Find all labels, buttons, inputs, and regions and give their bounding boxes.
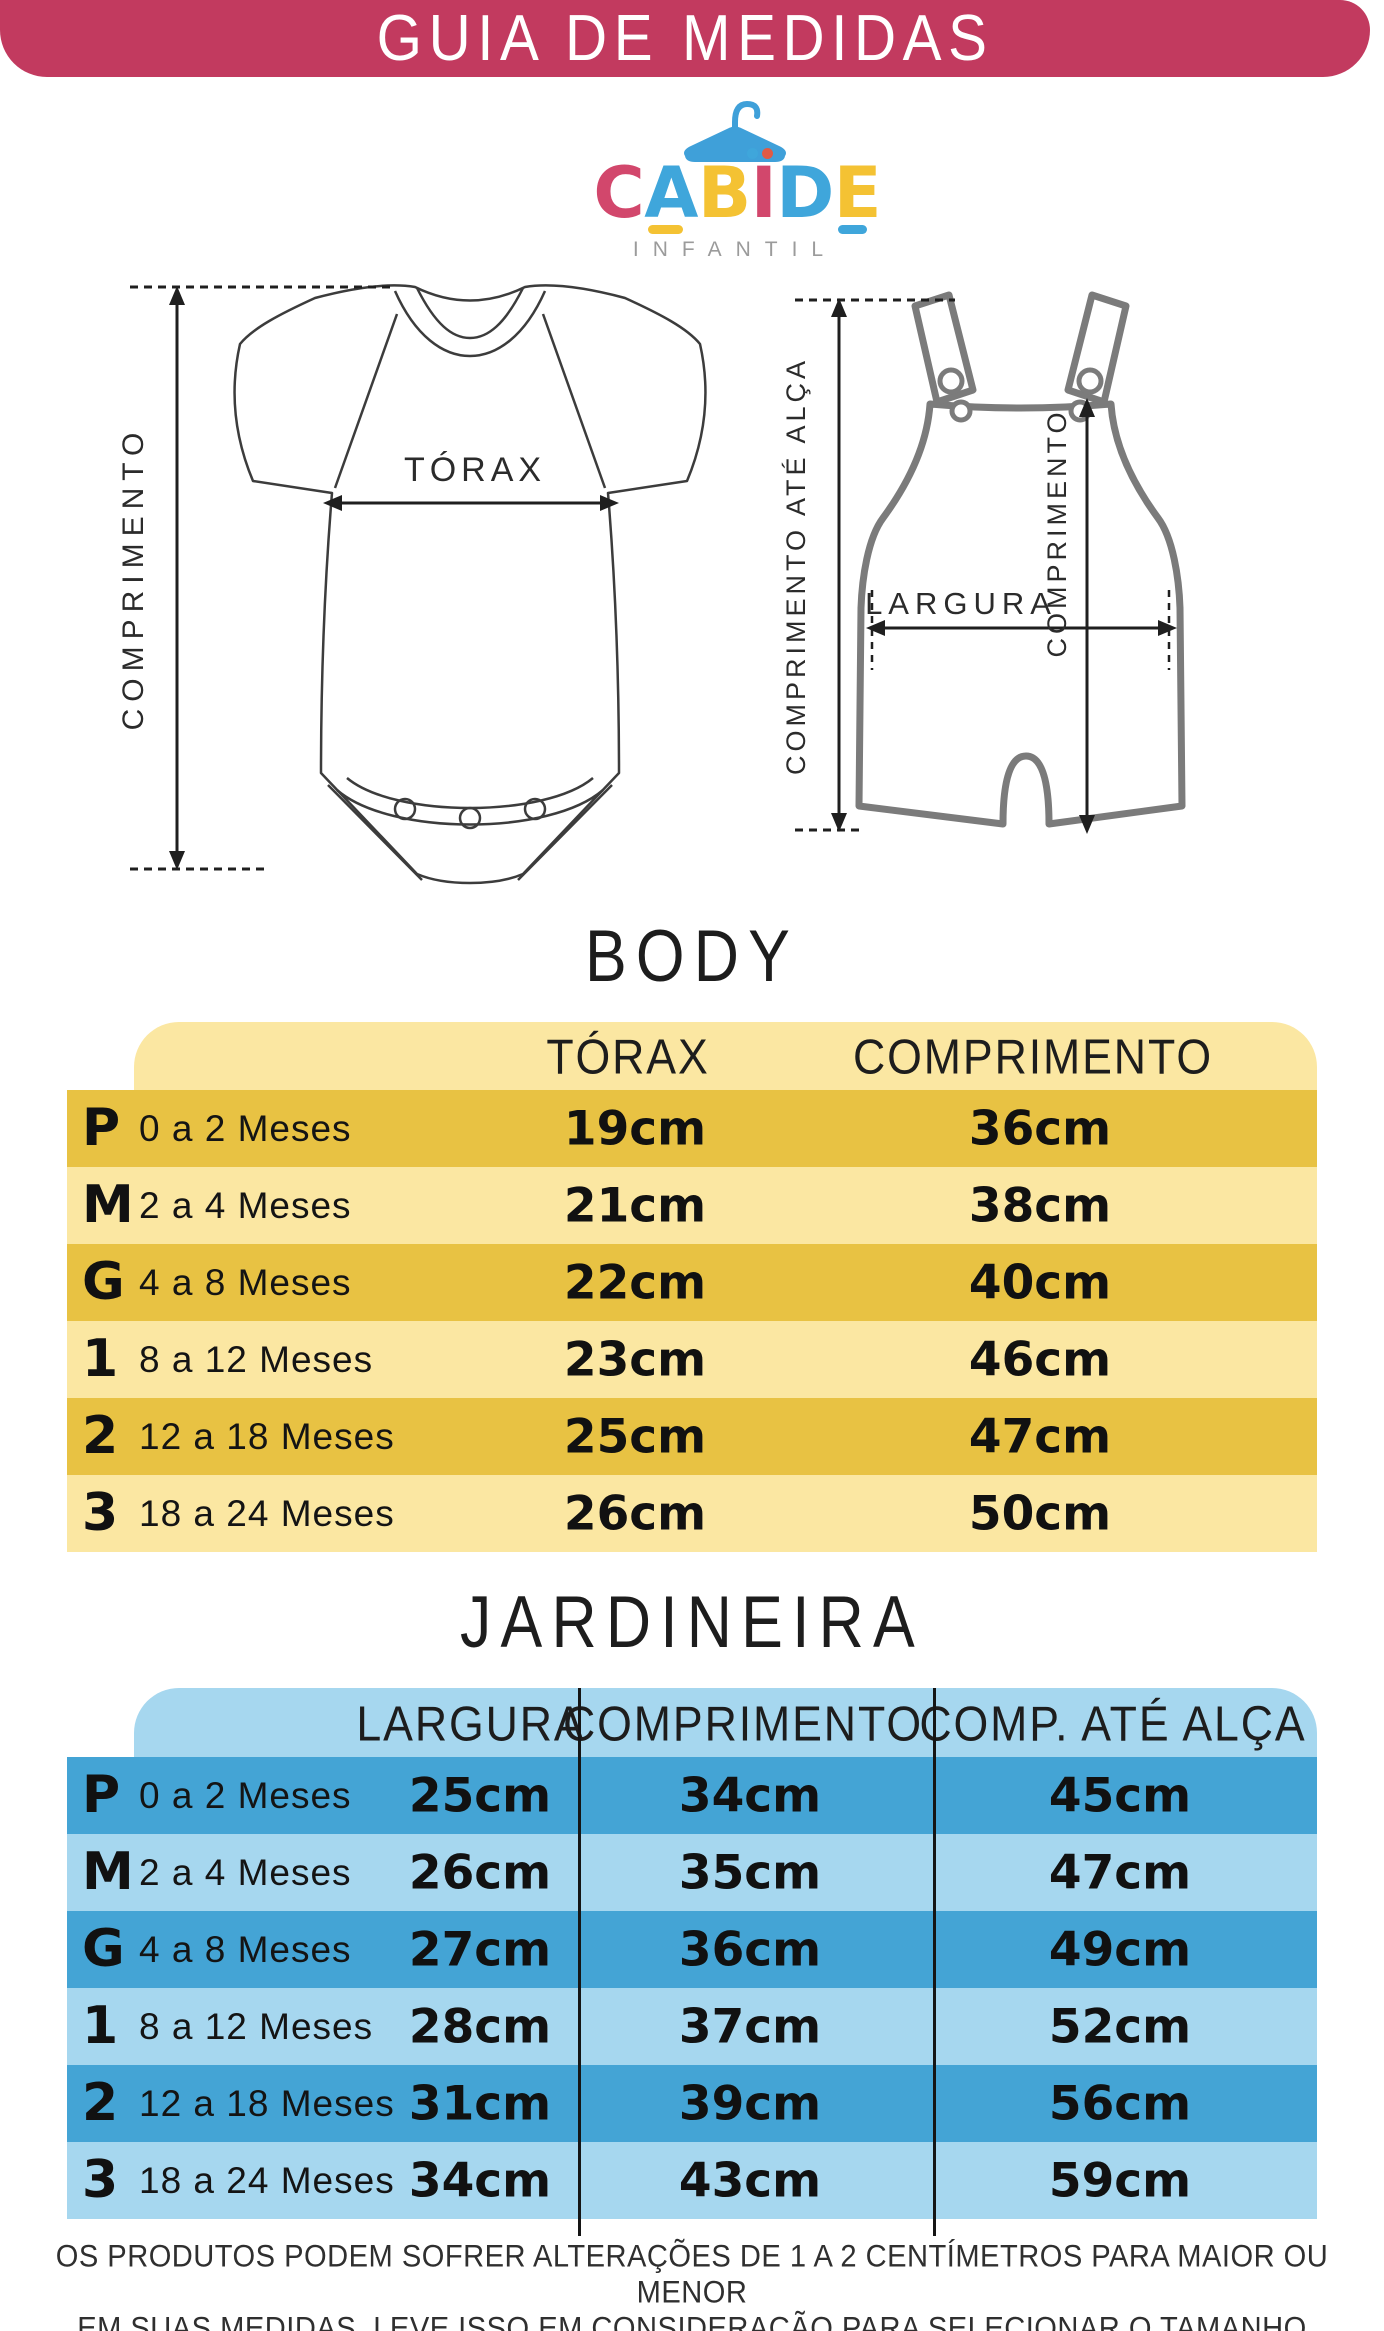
age-range: 0 a 2 Meses [139, 1108, 352, 1150]
age-range: 2 a 4 Meses [139, 1852, 352, 1894]
table-row: 3 18 a 24 Meses 34cm 43cm 59cm [67, 2142, 1317, 2219]
largura-value: 28cm [409, 1999, 551, 2054]
comp-ate-alca-value: 47cm [1049, 1845, 1191, 1900]
body-section-title: BODY [55, 919, 1328, 992]
torax-value: 19cm [564, 1101, 706, 1156]
largura-value: 26cm [409, 1845, 551, 1900]
comprimento-value: 43cm [679, 2153, 821, 2208]
page-title: GUIA DE MEDIDAS [377, 1, 994, 76]
largura-value: 34cm [409, 2153, 551, 2208]
age-range: 8 a 12 Meses [139, 2006, 373, 2048]
jardineira-section-title: JARDINEIRA [55, 1585, 1328, 1658]
largura-value: 27cm [409, 1922, 551, 1977]
brand-logo: C A B I D E INFANTIL [555, 92, 915, 262]
size-label: 1 [82, 1328, 118, 1388]
table-row: 1 8 a 12 Meses 23cm 46cm [67, 1321, 1317, 1398]
body-table: P 0 a 2 Meses 19cm 36cm M 2 a 4 Meses 21… [67, 1090, 1317, 1552]
comprimento-value: 36cm [679, 1922, 821, 1977]
header-banner: GUIA DE MEDIDAS [0, 0, 1370, 77]
torax-value: 25cm [564, 1409, 706, 1464]
body-table-header: TÓRAX COMPRIMENTO [134, 1022, 1317, 1090]
age-range: 12 a 18 Meses [139, 1416, 395, 1458]
torax-value: 22cm [564, 1255, 706, 1310]
table-row: G 4 a 8 Meses 27cm 36cm 49cm [67, 1911, 1317, 1988]
brand-letter: B [698, 158, 746, 228]
table-row: 1 8 a 12 Meses 28cm 37cm 52cm [67, 1988, 1317, 2065]
comprimento-value: 46cm [969, 1332, 1111, 1387]
size-label: 3 [82, 1482, 118, 1542]
table-row: M 2 a 4 Meses 21cm 38cm [67, 1167, 1317, 1244]
column-header-comprimento: COMPRIMENTO [563, 1694, 923, 1752]
column-divider [578, 1688, 581, 2236]
jardineira-table-header: LARGURA COMPRIMENTO COMP. ATÉ ALÇA [134, 1688, 1317, 1757]
comprimento-value: 36cm [969, 1101, 1111, 1156]
comp-ate-alca-value: 52cm [1049, 1999, 1191, 2054]
largura-value: 31cm [409, 2076, 551, 2131]
column-divider [933, 1688, 936, 2236]
table-row: P 0 a 2 Meses 19cm 36cm [67, 1090, 1317, 1167]
age-range: 0 a 2 Meses [139, 1775, 352, 1817]
table-row: 2 12 a 18 Meses 25cm 47cm [67, 1398, 1317, 1475]
comp-ate-alca-value: 59cm [1049, 2153, 1191, 2208]
comp-ate-alca-value: 56cm [1049, 2076, 1191, 2131]
age-range: 2 a 4 Meses [139, 1185, 352, 1227]
size-label: M [82, 1841, 134, 1901]
comprimento-value: 50cm [969, 1486, 1111, 1541]
i-dot-red [762, 148, 773, 159]
table-row: M 2 a 4 Meses 26cm 35cm 47cm [67, 1834, 1317, 1911]
brand-letter: E [834, 158, 877, 228]
size-label: P [82, 1764, 120, 1824]
comprimento-value: 35cm [679, 1845, 821, 1900]
age-range: 12 a 18 Meses [139, 2083, 395, 2125]
age-range: 4 a 8 Meses [139, 1262, 352, 1304]
footer-line-1: OS PRODUTOS PODEM SOFRER ALTERAÇÕES DE 1… [21, 2239, 1363, 2311]
comprimento-value: 40cm [969, 1255, 1111, 1310]
footer-line-2: EM SUAS MEDIDAS, LEVE ISSO EM CONSIDERAÇ… [21, 2311, 1363, 2331]
column-header-torax: TÓRAX [546, 1027, 709, 1085]
table-row: 3 18 a 24 Meses 26cm 50cm [67, 1475, 1317, 1552]
brand-letter: C [593, 158, 639, 228]
column-header-comprimento: COMPRIMENTO [853, 1027, 1213, 1085]
size-label: M [82, 1174, 134, 1234]
comp-ate-alca-value: 49cm [1049, 1922, 1191, 1977]
jardineira-table: P 0 a 2 Meses 25cm 34cm 45cm M 2 a 4 Mes… [67, 1757, 1317, 2219]
brand-subtitle: INFANTIL [555, 238, 915, 262]
overalls-drawing [859, 295, 1182, 824]
size-label: 2 [82, 1405, 118, 1465]
bodysuit-drawing [234, 285, 705, 883]
comprimento-value: 38cm [969, 1178, 1111, 1233]
size-label: 1 [82, 1995, 118, 2055]
largura-value: 25cm [409, 1768, 551, 1823]
table-row: 2 12 a 18 Meses 31cm 39cm 56cm [67, 2065, 1317, 2142]
age-range: 4 a 8 Meses [139, 1929, 352, 1971]
comprimento-value: 39cm [679, 2076, 821, 2131]
size-label: 2 [82, 2072, 118, 2132]
brand-wordmark: C A B I D E [555, 158, 915, 228]
body-length-label: COMPRIMENTO [117, 426, 150, 731]
size-label: P [82, 1097, 120, 1157]
brand-letter-i: I [751, 158, 772, 228]
brand-letter: A [644, 158, 693, 228]
size-label: 3 [82, 2149, 118, 2209]
footer-note: OS PRODUTOS PODEM SOFRER ALTERAÇÕES DE 1… [21, 2239, 1363, 2331]
comprimento-value: 47cm [969, 1409, 1111, 1464]
torax-value: 26cm [564, 1486, 706, 1541]
torax-value: 23cm [564, 1332, 706, 1387]
table-row: P 0 a 2 Meses 25cm 34cm 45cm [67, 1757, 1317, 1834]
column-header-largura: LARGURA [356, 1694, 585, 1752]
comprimento-value: 34cm [679, 1768, 821, 1823]
brand-letter: D [776, 158, 829, 228]
overalls-measure-diagram: COMPRIMENTO ATÉ ALÇA COMPRIMENTO LARGURA [765, 278, 1335, 890]
size-label: G [82, 1918, 125, 1978]
size-guide-page: GUIA DE MEDIDAS C A B I D E INFANTIL [0, 0, 1384, 2331]
age-range: 18 a 24 Meses [139, 1493, 395, 1535]
table-row: G 4 a 8 Meses 22cm 40cm [67, 1244, 1317, 1321]
size-label: G [82, 1251, 125, 1311]
column-header-comp-ate-alca: COMP. ATÉ ALÇA [919, 1694, 1306, 1752]
comp-ate-alca-value: 45cm [1049, 1768, 1191, 1823]
age-range: 8 a 12 Meses [139, 1339, 373, 1381]
overalls-strap-length-label: COMPRIMENTO ATÉ ALÇA [781, 357, 811, 775]
body-chest-label: TÓRAX [404, 451, 546, 489]
comprimento-value: 37cm [679, 1999, 821, 2054]
bodysuit-measure-diagram: COMPRIMENTO TÓRAX [85, 278, 745, 890]
overalls-width-label: LARGURA [865, 586, 1057, 621]
age-range: 18 a 24 Meses [139, 2160, 395, 2202]
i-dot-blue [747, 148, 758, 159]
torax-value: 21cm [564, 1178, 706, 1233]
